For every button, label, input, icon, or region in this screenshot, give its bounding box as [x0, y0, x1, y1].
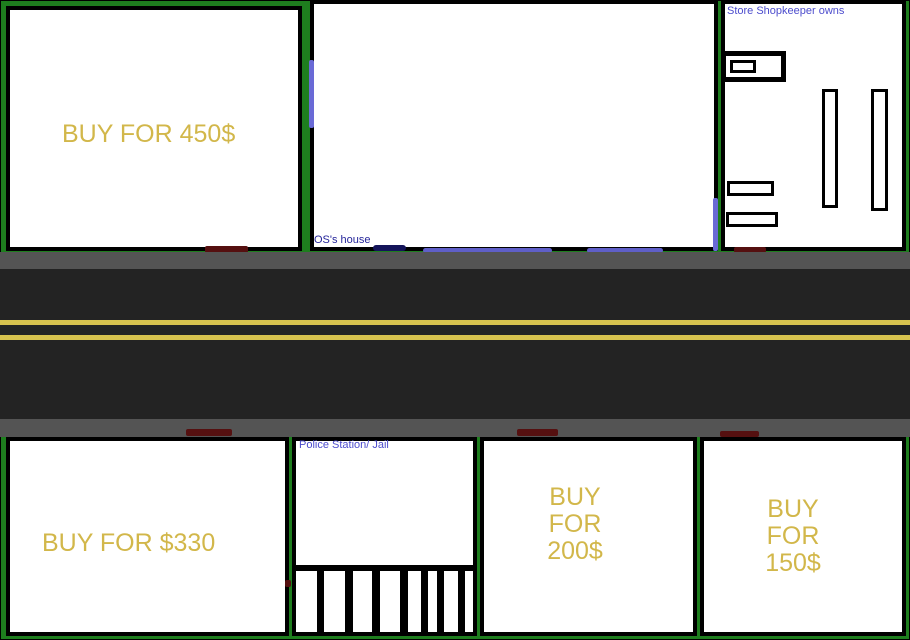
price-line-2: 150$: [738, 550, 848, 577]
jail-bar: [421, 571, 428, 632]
os-house: OS's house: [310, 0, 718, 251]
police-station-label: Police Station/ Jail: [299, 439, 389, 452]
price-label: BUY FOR 450$: [62, 120, 235, 148]
door-plot-330: [186, 429, 232, 436]
road-center-line-2: [0, 335, 910, 340]
jail-bar: [372, 571, 380, 632]
aisle-shelf-1: [822, 89, 838, 208]
price-label: BUY FOR 150$: [738, 496, 848, 577]
shelf-a: [727, 181, 774, 196]
jail-bar: [400, 571, 408, 632]
plot-for-sale-150[interactable]: BUY FOR 150$: [700, 437, 906, 636]
jail-bar: [345, 571, 353, 632]
asphalt: [0, 269, 910, 419]
plot-for-sale-450[interactable]: BUY FOR 450$: [6, 6, 302, 251]
jail-side-door: [285, 580, 291, 587]
plot-for-sale-200[interactable]: BUY FOR 200$: [480, 437, 697, 636]
store: Store Shopkeeper owns: [721, 0, 906, 251]
police-station: Police Station/ Jail: [292, 437, 477, 636]
aisle-shelf-2: [871, 89, 888, 211]
price-label: BUY FOR 200$: [520, 484, 630, 565]
price-line-1: BUY FOR: [520, 484, 630, 538]
sidewalk-bottom: [0, 419, 910, 437]
window-left: [309, 60, 314, 128]
checkout-register: [730, 60, 756, 73]
jail-bar: [317, 571, 324, 632]
road: [0, 252, 910, 437]
shelf-b: [726, 212, 778, 227]
game-map: BUY FOR 450$ OS's house Store Shopkeeper…: [0, 0, 910, 640]
window-right: [713, 198, 718, 251]
price-line-1: BUY FOR: [738, 496, 848, 550]
os-house-label: OS's house: [314, 234, 371, 247]
store-label: Store Shopkeeper owns: [727, 5, 844, 18]
price-line-2: 200$: [520, 538, 630, 565]
sidewalk-top: [0, 252, 910, 269]
jail-bar: [458, 571, 465, 632]
plot-for-sale-330[interactable]: BUY FOR $330: [6, 437, 289, 636]
jail-bar: [437, 571, 444, 632]
road-center-line-1: [0, 320, 910, 325]
door-plot-200: [517, 429, 558, 436]
doormat-navy: [373, 245, 406, 251]
price-label: BUY FOR $330: [42, 529, 215, 557]
